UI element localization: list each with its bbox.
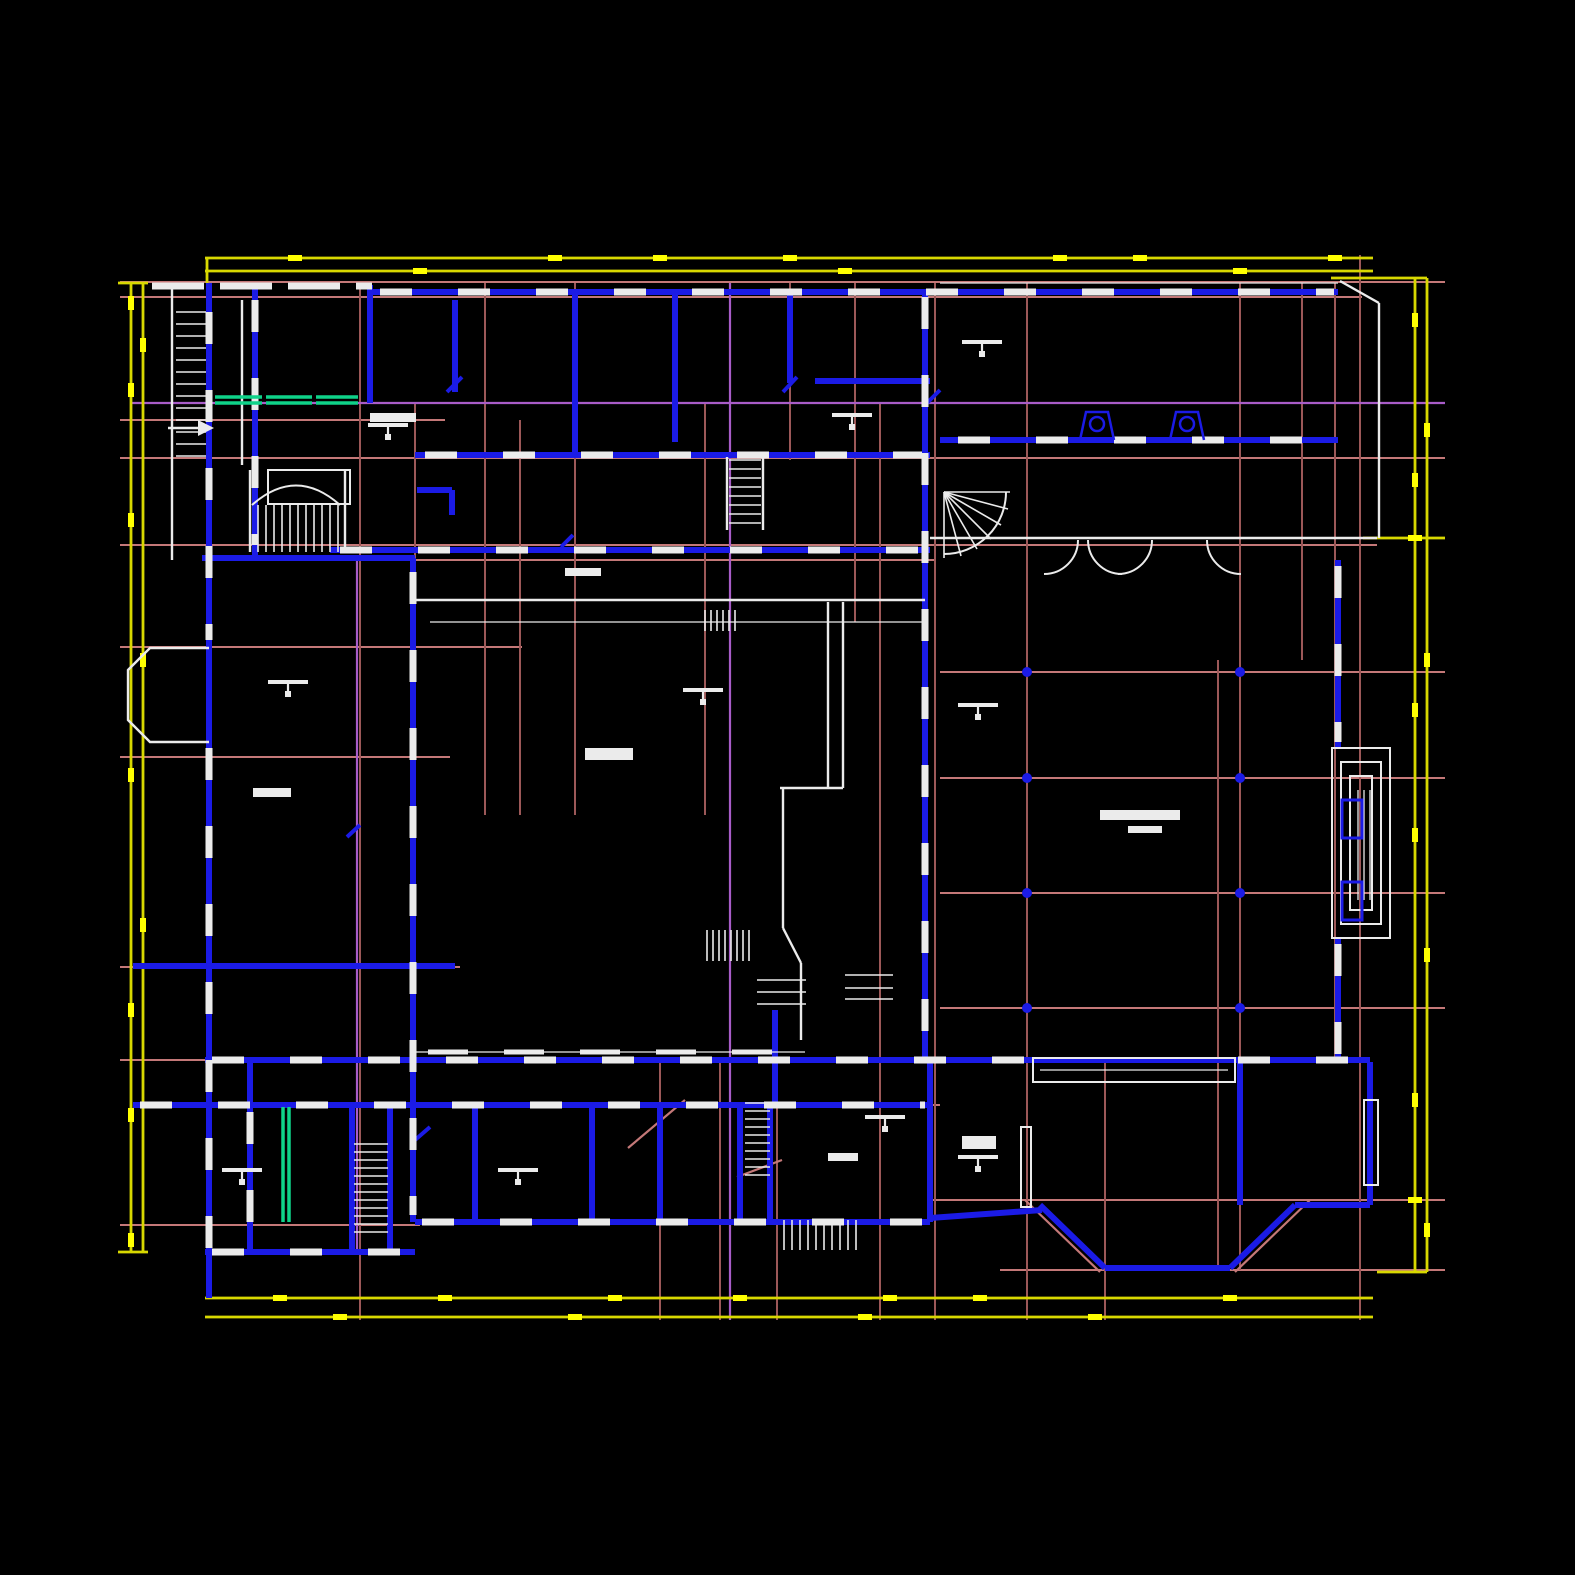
layer-step-rects [268, 470, 1390, 1207]
layer-white-walls [168, 281, 1379, 1040]
layer-white-thin [415, 283, 1370, 1070]
cad-canvas[interactable] [0, 0, 1575, 1575]
layer-grid-dots [1022, 667, 1245, 1013]
cad-viewport [0, 0, 1575, 1575]
layer-t-marker-stems [242, 342, 982, 1182]
layer-grid-rose-h [120, 282, 1445, 1270]
layer-green-lines [215, 397, 358, 1222]
layer-fixture-circles [1090, 417, 1194, 431]
layer-yellow-ticks [131, 258, 1427, 1317]
layer-walls-blue [133, 283, 1370, 1298]
